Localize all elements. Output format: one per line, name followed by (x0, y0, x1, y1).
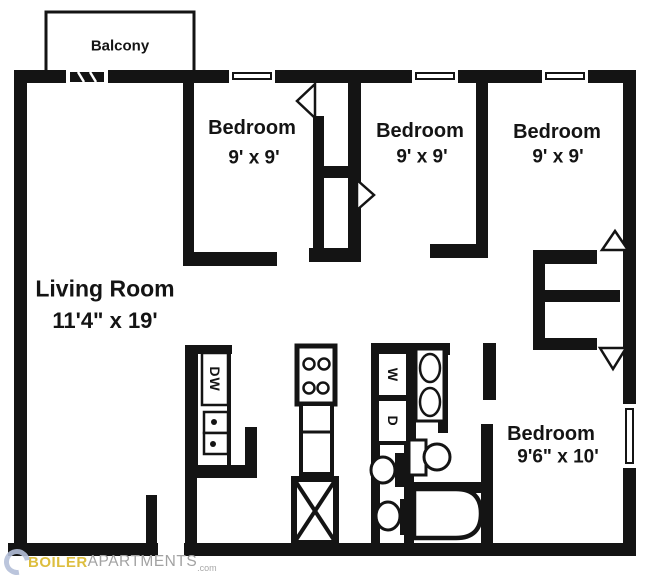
bathtub-icon (414, 489, 481, 538)
bedroom-1-label: Bedroom (208, 118, 296, 138)
window-icon (623, 404, 636, 468)
window-icon (412, 68, 458, 85)
bedroom-4-dims: 9'6" x 10' (517, 448, 598, 467)
toilet-icon (409, 440, 450, 475)
door-swing-icon (297, 84, 315, 118)
double-sink-vanity-icon (416, 349, 444, 421)
toilet-icon (376, 499, 409, 535)
door-swing-icon (600, 348, 626, 369)
kitchen-sink-icon (204, 412, 228, 454)
kitchen-stove-run (294, 346, 336, 543)
window-icon (229, 68, 275, 85)
floor-plan: Balcony Living Room 11'4" x 19' Bedroom … (0, 0, 650, 577)
stove-icon (297, 346, 335, 404)
toilet-icon (371, 453, 406, 487)
bedroom-4-label: Bedroom (507, 424, 595, 444)
dryer-label: D (386, 415, 400, 426)
sliding-door-icon (66, 68, 108, 85)
living-room-label: Living Room (35, 278, 174, 301)
bedroom-1-dims: 9' x 9' (228, 149, 279, 168)
watermark: BOILER APARTMENTS .com (4, 549, 217, 575)
watermark-suffix: .com (197, 563, 217, 575)
crossed-box-icon (294, 479, 336, 543)
bedroom-3-label: Bedroom (513, 122, 601, 142)
balcony-label: Balcony (91, 39, 149, 54)
bedroom-2-dims: 9' x 9' (396, 148, 447, 167)
washer-label: W (386, 368, 400, 382)
watermark-brand-first: BOILER (28, 554, 88, 571)
bedroom-3-dims: 9' x 9' (532, 148, 583, 167)
window-icon (542, 68, 588, 85)
living-room-dims: 11'4" x 19' (52, 310, 157, 332)
door-swing-icon (357, 180, 374, 210)
bedroom-2-label: Bedroom (376, 121, 464, 141)
kitchen-counter (185, 345, 257, 478)
dishwasher-label: DW (208, 366, 222, 391)
boilerapartments-logo-icon (0, 544, 35, 577)
watermark-brand-second: APARTMENTS (88, 553, 198, 571)
